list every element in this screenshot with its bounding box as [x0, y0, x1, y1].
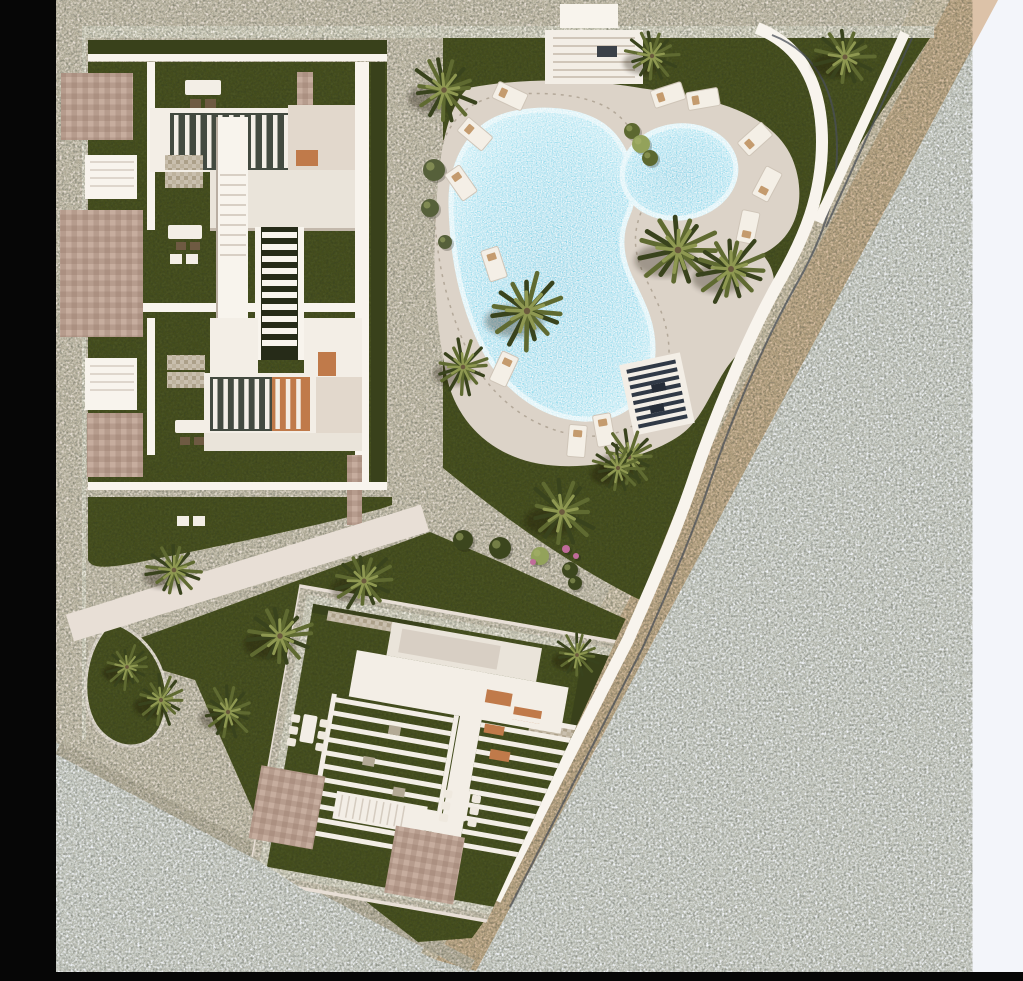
ladder-stair — [255, 227, 304, 360]
garden-bush — [489, 537, 511, 559]
flower-bush — [573, 553, 579, 559]
brick-patio — [249, 765, 326, 849]
sun-lounger — [567, 424, 588, 457]
garden-bush — [423, 159, 445, 181]
garden-bush — [642, 150, 658, 166]
brick-patio — [60, 210, 143, 337]
hedge-row — [88, 40, 387, 54]
flower-bush — [562, 545, 570, 553]
north-path — [85, 26, 934, 38]
site-plan-screenshot — [0, 0, 1023, 981]
garden-bush — [568, 576, 582, 590]
roof-pergola-slats — [213, 379, 301, 429]
garden-bush — [562, 562, 578, 578]
garden-bush — [421, 199, 439, 217]
brick-patio — [87, 413, 143, 477]
garden-bush — [632, 135, 650, 153]
hedge-column — [371, 62, 385, 482]
brick-patio — [384, 826, 465, 905]
garden-bush — [438, 235, 452, 249]
brick-patio — [61, 73, 133, 140]
garden-bush — [453, 530, 473, 550]
site-plan — [0, 0, 1023, 981]
flower-bush — [530, 559, 536, 565]
